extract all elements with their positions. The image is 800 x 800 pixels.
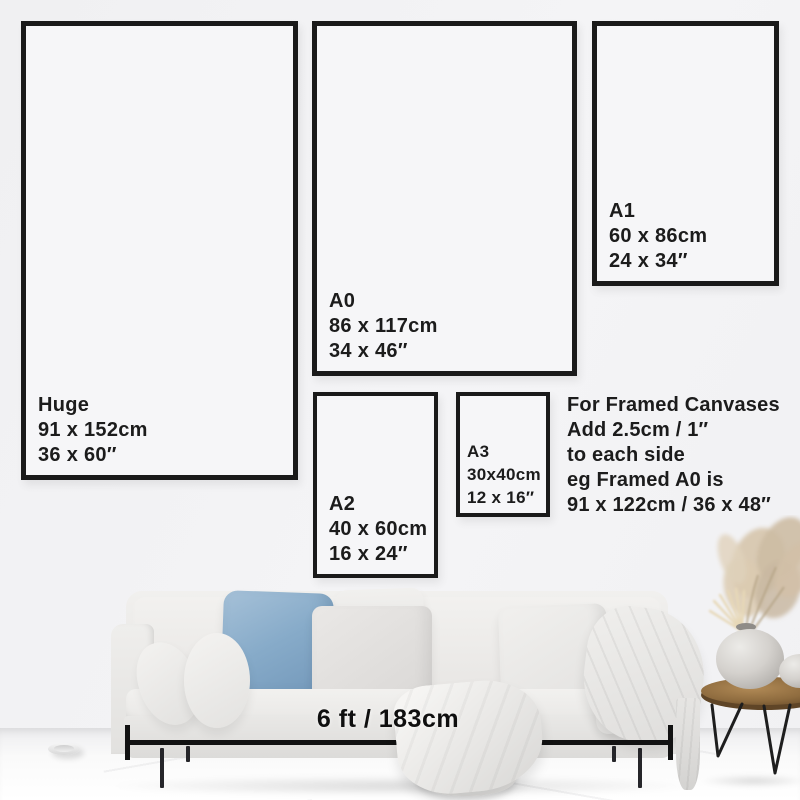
size-name: A3	[467, 440, 541, 463]
round-white-pillow	[184, 633, 250, 728]
size-inches: 24 x 34″	[609, 249, 707, 274]
sofa-leg	[638, 748, 642, 788]
framing-note-line: Add 2.5cm / 1″	[567, 418, 797, 443]
floor-dish	[48, 743, 80, 755]
framing-note-line: to each side	[567, 443, 797, 468]
size-inches: 12 x 16″	[467, 486, 541, 509]
size-inches: 36 x 60″	[38, 443, 148, 468]
sofa-leg	[186, 746, 190, 762]
measurement-cap-left	[125, 725, 130, 760]
sofa-width-label: 6 ft / 183cm	[282, 705, 494, 734]
framing-note-line: eg Framed A0 is	[567, 468, 797, 493]
size-inches: 16 x 24″	[329, 542, 427, 567]
size-frame-a1: A1 60 x 86cm 24 x 34″	[592, 21, 779, 286]
size-cm: 91 x 152cm	[38, 418, 148, 443]
size-frame-a2: A2 40 x 60cm 16 x 24″	[313, 392, 438, 578]
measurement-cap-right	[668, 725, 673, 760]
size-label-a3: A3 30x40cm 12 x 16″	[467, 440, 541, 509]
size-label-a0: A0 86 x 117cm 34 x 46″	[329, 289, 438, 364]
size-cm: 40 x 60cm	[329, 517, 427, 542]
sofa-floor-shadow	[112, 776, 692, 796]
sofa-leg	[612, 746, 616, 762]
size-frame-a3: A3 30x40cm 12 x 16″	[456, 392, 550, 517]
size-label-huge: Huge 91 x 152cm 36 x 60″	[38, 393, 148, 468]
size-name: Huge	[38, 393, 148, 418]
side-table-decor	[680, 515, 800, 800]
size-frame-a0: A0 86 x 117cm 34 x 46″	[312, 21, 577, 376]
pampas-grass	[712, 515, 800, 625]
size-name: A2	[329, 492, 427, 517]
framing-note-line: For Framed Canvases	[567, 393, 797, 418]
size-label-a1: A1 60 x 86cm 24 x 34″	[609, 199, 707, 274]
framing-note: For Framed Canvases Add 2.5cm / 1″ to ea…	[567, 393, 797, 518]
size-name: A0	[329, 289, 438, 314]
size-cm: 60 x 86cm	[609, 224, 707, 249]
size-label-a2: A2 40 x 60cm 16 x 24″	[329, 492, 427, 567]
size-cm: 86 x 117cm	[329, 314, 438, 339]
size-frame-huge: Huge 91 x 152cm 36 x 60″	[21, 21, 298, 480]
size-cm: 30x40cm	[467, 463, 541, 486]
sofa-leg	[160, 748, 164, 788]
size-guide-scene: Huge 91 x 152cm 36 x 60″ A0 86 x 117cm 3…	[0, 0, 800, 800]
size-name: A1	[609, 199, 707, 224]
size-inches: 34 x 46″	[329, 339, 438, 364]
